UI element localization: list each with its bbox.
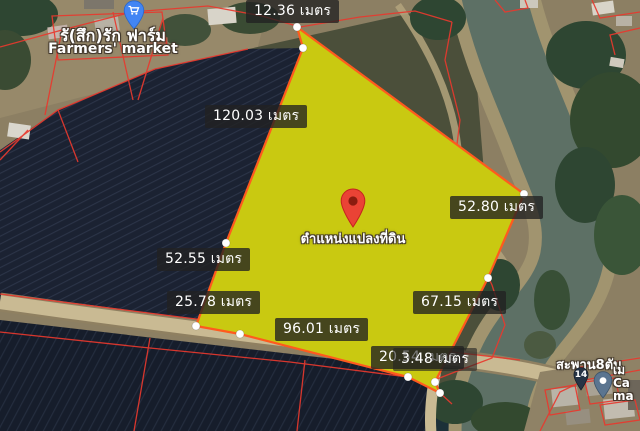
measure-right-upper: 52.80 เมตร	[450, 196, 543, 219]
clipped-poi-label[interactable]: เม Ca ma	[613, 364, 634, 403]
plot-marker-caption: ตำแหน่งแปลงที่ดิน	[284, 228, 422, 249]
measure-bottom-right-b: 3.48 เมตร	[393, 348, 477, 371]
satellite-imagery	[0, 0, 640, 431]
measure-left-mid: 52.55 เมตร	[157, 248, 250, 271]
measure-top: 12.36 เมตร	[246, 0, 339, 23]
bridge-limit-pin[interactable]: 14	[573, 367, 589, 395]
map-canvas[interactable]: 12.36 เมตร 120.03 เมตร 52.80 เมตร 52.55 …	[0, 0, 640, 431]
poi-pin-icon	[593, 371, 613, 399]
measure-left-lower: 25.78 เมตร	[167, 291, 260, 314]
clipped-poi-line3: ma	[613, 390, 634, 403]
measure-bottom: 96.01 เมตร	[275, 318, 368, 341]
location-pin-icon	[340, 188, 366, 228]
measure-left-upper: 120.03 เมตร	[205, 105, 307, 128]
plot-location-pin[interactable]	[340, 188, 366, 232]
measure-right-lower: 67.15 เมตร	[413, 291, 506, 314]
riverside-poi-pin[interactable]	[593, 371, 613, 403]
market-name-en[interactable]: Farmers' market	[30, 41, 196, 57]
bridge-pin-number: 14	[573, 370, 589, 380]
